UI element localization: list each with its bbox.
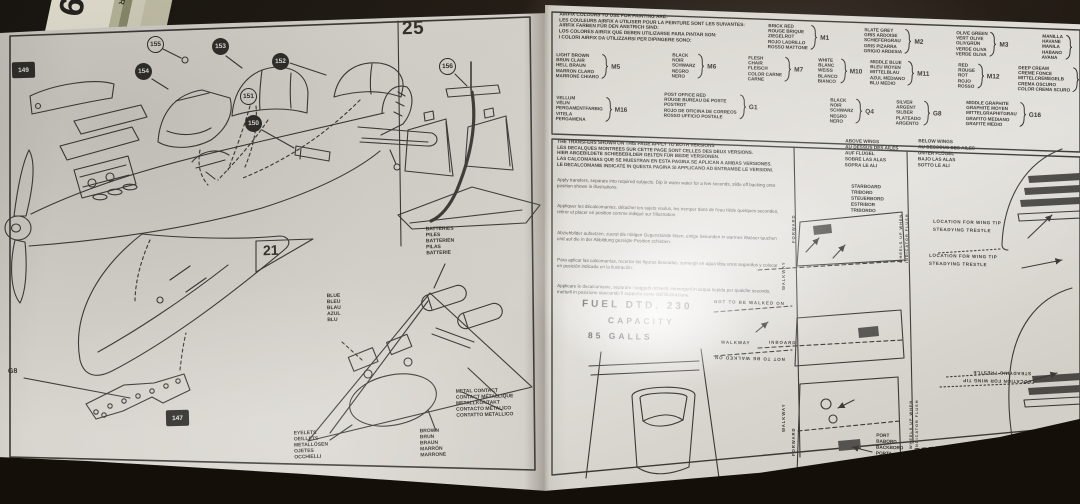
colour-code: M11	[917, 70, 929, 77]
brace-glyph	[810, 24, 818, 50]
port-label: PORT BABORD BACKBORD PORTA PORTELLO	[876, 433, 904, 463]
brace-glyph	[907, 60, 915, 86]
paint-cell-g8: SILVER ARGENT SILBER PLATEADO ARGENTOG8	[896, 99, 942, 126]
paint-cell-m3: OLIVE GREEN VERT OLIVE OLIVGRÜN VERDE OL…	[956, 30, 1009, 58]
colour-names: SLATE GREY GRIS ARDOISE SCHIEFERGRAU GRI…	[864, 27, 903, 54]
part-callout-149: 149	[12, 62, 35, 79]
paint-cell-m10: WHITE BLANC WEISS BLANCO BIANCOM10	[818, 57, 863, 84]
paint-cell-m7: FLESH CHAIR FLEISCH COLOR CARNE CARNEM7	[748, 55, 804, 83]
fuel-stencil-line3: 85 GALLS	[588, 330, 653, 342]
step-number-25: 25	[402, 18, 425, 41]
colour-names: BLACK NOIR SCHWARZ NEGRO NERO	[830, 97, 854, 124]
paint-cell-manilla: MANILLA HAVANE MANILA HABANO AVANA	[1042, 34, 1072, 61]
below-wings-label: BELOW WINGS AU DESSOUS DES AILES UNTER F…	[918, 138, 976, 169]
brace-glyph	[604, 96, 612, 122]
step-number-21: 21	[263, 242, 279, 259]
forward-label-vertical-2: FORWARD	[791, 427, 797, 456]
colour-names: WHITE BLANC WEISS BLANCO BIANCO	[818, 57, 838, 84]
paint-cell-m12: RED ROUGE ROT ROJO ROSSOM12	[958, 62, 1000, 89]
starboard-label: STARBOARD TRIBORD STEUERBORD ESTRIBOR TR…	[851, 184, 885, 214]
colour-code: M1	[820, 34, 829, 41]
paint-cell-g16: MIDDLE GRAPHITE GRAPHITE MOYEN MITTELGRA…	[966, 100, 1042, 128]
wheels-up-indicator-label-1: WHEELS UP WHEN INDICATOR FLUSH	[899, 201, 910, 263]
colour-names: BRICK RED ROUGE BRIQUE ZIEGELROT ROJO LA…	[768, 23, 809, 50]
brace-glyph	[976, 63, 984, 89]
brace-glyph	[1018, 102, 1026, 128]
colour-names: MIDDLE GRAPHITE GRAPHITE MOYEN MITTELGRA…	[966, 100, 1018, 128]
colour-names: BLACK NOIR SCHWARZ NEGRO NERO	[672, 52, 696, 79]
brace-glyph	[1064, 34, 1072, 60]
brace-glyph	[738, 94, 746, 120]
canopy-parts-drawing	[30, 49, 403, 161]
photo-of-instruction-booklet: 09 AR	[0, 0, 1080, 504]
right-page-drawing	[552, 12, 1080, 478]
above-wings-label: ABOVE WINGS AU DESSUS DES AILES AUF FLÜG…	[845, 138, 899, 169]
colour-names: FLESH CHAIR FLEISCH COLOR CARNE CARNE	[748, 55, 783, 82]
walkway-stencil: WALKWAY	[721, 340, 751, 346]
colour-code: G8	[933, 110, 942, 117]
colour-names: VELLUM VÉLIN PERGAMENTFARBIG VITELA PERG…	[556, 95, 603, 122]
wing-tip-trestle-label-1: LOCATION FOR WING TIP STEADYING TRESTLE	[933, 218, 1031, 236]
metal-contact-label: METAL CONTACT CONTACT MÉTALLIQUE METALLK…	[456, 388, 514, 419]
aircraft-drawing	[5, 86, 437, 375]
colour-code: G1	[749, 104, 758, 111]
colour-code: M2	[914, 38, 923, 45]
wheels-up-indicator-label-2: WHEELS UP WHEN INDICATOR FLUSH	[909, 367, 920, 449]
colour-names: MIDDLE BLUE BLEU MOYEN MITTELBLAU AZUL M…	[870, 59, 906, 86]
paint-cell-m5: LIGHT BROWN BRUN CLAIR HELL BRAUN MARRON…	[556, 52, 621, 80]
brace-glyph	[1072, 67, 1080, 93]
colour-code: M5	[611, 63, 620, 70]
brace-glyph	[697, 53, 705, 79]
colour-names: LIGHT BROWN BRUN CLAIR HELL BRAUN MARRON…	[556, 52, 600, 79]
colour-names: SILVER ARGENT SILBER PLATEADO ARGENTO	[896, 99, 922, 126]
paint-cell-q4: BLACK NOIR SCHWARZ NEGRO NEROQ4	[830, 97, 875, 124]
colour-code: Q4	[865, 108, 874, 115]
paint-cell-m6: BLACK NOIR SCHWARZ NEGRO NEROM6	[672, 52, 717, 79]
paint-cell-m2: SLATE GREY GRIS ARDOISE SCHIEFERGRAU GRI…	[864, 27, 924, 55]
colour-code: M3	[999, 41, 1008, 48]
brace-glyph	[904, 28, 912, 54]
assembly-guide-lines	[135, 100, 362, 370]
colour-names: OLIVE GREEN VERT OLIVE OLIVGRÜN VERDE OL…	[956, 30, 988, 57]
paint-cell-g1: POST OFFICE RED ROUGE BUREAU DE POSTE PO…	[664, 92, 758, 121]
walkway-label-vertical-2: WALKWAY	[781, 404, 787, 432]
wing-tip-drawings	[915, 149, 1080, 461]
brace-glyph	[784, 56, 792, 82]
fuselage-top-view-drawing	[586, 349, 719, 478]
fuel-stencil-line2: CAPACITY	[608, 315, 675, 327]
forward-label-vertical-1: FORWARD	[791, 214, 797, 243]
colour-code: M12	[987, 73, 1000, 80]
colour-names: RED ROUGE ROT ROJO ROSSO	[958, 62, 976, 89]
wing-tip-trestle-label-inverted: LOCATION FOR WING TIP STEADYING TRESTLE	[933, 368, 1031, 385]
colour-code: M7	[794, 66, 803, 73]
colour-code: M6	[707, 63, 716, 70]
colour-code: M10	[850, 68, 863, 75]
brace-glyph	[601, 53, 609, 79]
colour-code: M16	[615, 106, 628, 113]
paint-code-g8-label: G8	[8, 368, 18, 376]
blue-label: BLUE BLEU BLAU AZUL BLU	[327, 294, 342, 324]
paint-cell-m16: VELLUM VÉLIN PERGAMENTFARBIG VITELA PERG…	[556, 95, 628, 123]
inboard-stencil: INBOARD	[769, 340, 797, 346]
brace-glyph	[989, 31, 997, 57]
brace-glyph	[855, 98, 863, 124]
walkway-label-vertical-1: WALKWAY	[781, 262, 787, 290]
brace-glyph	[839, 58, 847, 84]
colour-names: MANILLA HAVANE MANILA HABANO AVANA	[1042, 34, 1063, 61]
brace-glyph	[923, 100, 931, 126]
brown-label: BROWN BRUN BRAUN MARRÓN MARRONE	[420, 429, 447, 459]
paint-cell-m11: MIDDLE BLUE BLEU MOYEN MITTELBLAU AZUL M…	[870, 59, 930, 87]
wing-tip-trestle-label-2: LOCATION FOR WING TIP STEADYING TRESTLE	[929, 252, 1027, 270]
colour-names: POST OFFICE RED ROUGE BUREAU DE POSTE PO…	[664, 92, 738, 120]
batteries-label: BATTERIES PILES BATTERIEN PILAS BATTERIE	[426, 227, 455, 257]
paint-cell-m1: BRICK RED ROUGE BRIQUE ZIEGELROT ROJO LA…	[768, 23, 830, 51]
colour-names: DEEP CREAM CREME FONCE MITTELCREMEGELB C…	[1018, 65, 1071, 93]
paint-colours-header: AIRFIX COLOURS TO USE FOR PAINTING ARE: …	[559, 12, 765, 46]
eyelets-label: EYELETS OEILLETS METALLÖSEN OJETES OCCHI…	[294, 431, 329, 461]
paint-cell-deep-cream: DEEP CREAM CREME FONCE MITTELCREMEGELB C…	[1018, 65, 1080, 93]
colour-code: G16	[1029, 111, 1041, 118]
part-callout-147: 147	[166, 410, 189, 427]
